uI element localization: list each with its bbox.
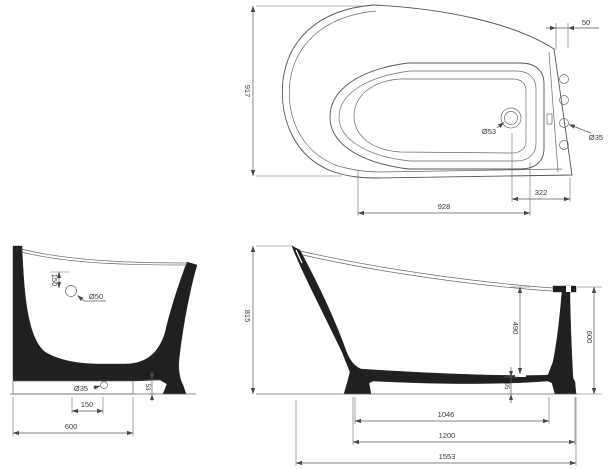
extension-lines <box>296 397 576 466</box>
bathtub-technical-drawing: 917 50 928 322 Ø53 Ø35 <box>0 0 611 469</box>
dim-side-floor-length-label: 1046 <box>438 410 455 419</box>
dim-side-inner-depth-label: 490 <box>511 322 520 335</box>
side-section-view: 815 490 600 95 1046 <box>243 246 602 466</box>
plan-overflow-slot <box>547 114 552 124</box>
dim-side-overall-length: 1553 <box>296 397 576 466</box>
plan-rim-edge <box>289 11 562 172</box>
dim-cross-base-width-label: 600 <box>65 422 78 431</box>
dim-side-inner-depth: 490 <box>511 287 530 374</box>
overflow-hole <box>66 286 77 297</box>
side-rim-lines <box>300 251 554 291</box>
dim-plan-basin-length-label: 928 <box>438 202 451 211</box>
cross-section-view: 150 Ø50 Ø35 150 600 53 <box>10 246 197 436</box>
dim-plan-end-offset: 322 <box>512 133 570 202</box>
dim-side-floor-length: 1046 <box>355 397 549 424</box>
dim-plan-end-offset-label: 322 <box>535 188 548 197</box>
overflow-holes-label: Ø35 <box>589 133 603 142</box>
dim-side-base-length-label: 1200 <box>439 431 456 440</box>
side-section-shell <box>292 246 576 394</box>
plan-basin-floor <box>354 79 526 153</box>
dim-side-back-height-label: 815 <box>243 310 252 323</box>
drawing-sheet: 917 50 928 322 Ø53 Ø35 <box>0 0 611 469</box>
drain-hole-outer <box>501 108 521 128</box>
dim-plan-lip: 50 <box>546 18 599 50</box>
dim-side-overall-length-label: 1553 <box>439 452 456 461</box>
plan-basin-rim-inner <box>339 71 536 161</box>
dim-cross-base-width: 600 <box>13 397 133 436</box>
side-drain-slot <box>515 372 526 377</box>
side-rim-notch <box>566 286 571 292</box>
dim-plan-width: 917 <box>243 6 368 176</box>
mount-hole-4 <box>560 141 569 150</box>
label-drain-diameter: Ø53 <box>482 123 504 137</box>
dim-cross-overflow-drop: 150 <box>50 272 69 288</box>
dim-side-front-height-label: 600 <box>585 331 594 344</box>
cross-section-shell <box>13 246 197 394</box>
side-overflow-slot <box>555 295 559 304</box>
dim-side-back-height: 815 <box>243 246 293 394</box>
dim-cross-overflow-drop-label: 150 <box>50 274 59 287</box>
dim-side-front-height: 600 <box>577 287 602 394</box>
overflow-diameter-label: Ø50 <box>89 292 103 301</box>
drain-diameter-label: Ø53 <box>482 127 496 136</box>
mount-hole-1 <box>560 75 569 84</box>
dim-plan-lip-label: 50 <box>582 18 590 27</box>
drain-hole-inner <box>505 112 518 125</box>
cross-rim-lines <box>21 249 188 265</box>
plan-view: 917 50 928 322 Ø53 Ø35 <box>243 5 603 216</box>
leader-line <box>78 296 85 302</box>
leader-line <box>497 123 504 129</box>
dim-side-bottom-clearance-label: 95 <box>503 383 509 390</box>
dim-cross-hole-offset-label: 150 <box>81 400 94 409</box>
base-hole-diameter-label: Ø35 <box>74 384 88 393</box>
dim-cross-plinth-height-label: 53 <box>144 384 150 391</box>
leader-line <box>569 125 591 134</box>
label-overflow-diameter: Ø50 <box>78 292 107 301</box>
dim-plan-width-label: 917 <box>243 85 252 98</box>
dim-cross-hole-offset: 150 <box>72 397 103 414</box>
extension-lines <box>556 23 568 50</box>
label-overflow-holes: Ø35 <box>569 125 603 143</box>
side-rim-end <box>553 286 576 292</box>
